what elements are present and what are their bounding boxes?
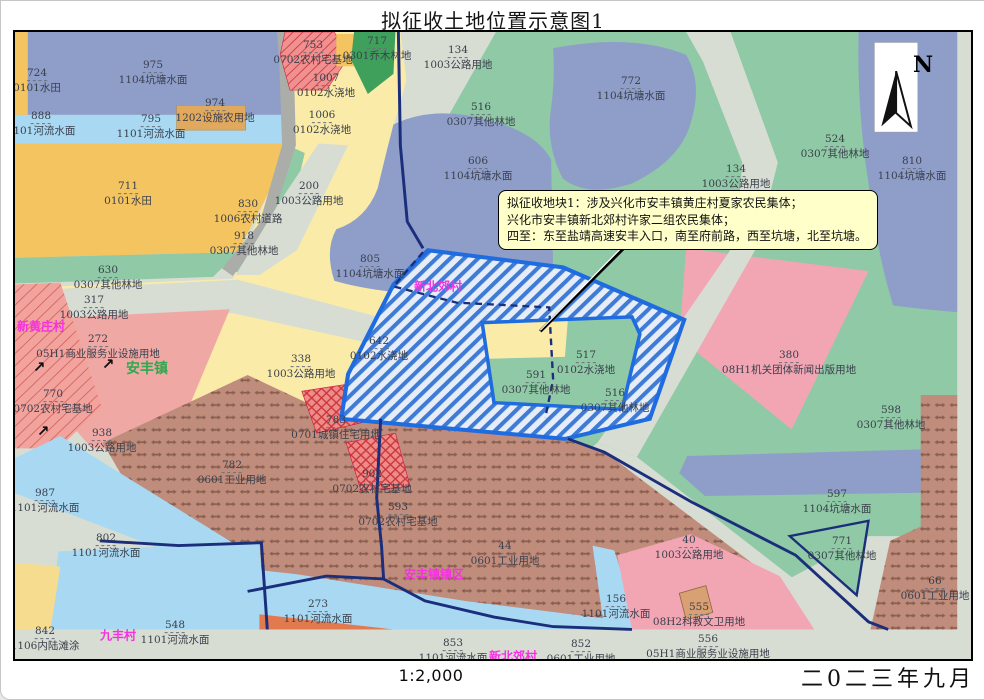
map-canvas[interactable]: 7240101水田9751104坑塘水面9741202设施农用地8881101河… xyxy=(13,30,973,661)
north-label: N xyxy=(909,52,937,78)
facility-agri-974 xyxy=(177,105,246,130)
pond-top-left xyxy=(15,32,284,115)
map-parcels-svg xyxy=(15,32,971,659)
callout-line-3: 四至：东至盐靖高速安丰入口，南至府前路，西至坑塘，北至坑塘。 xyxy=(507,228,869,245)
map-scale: 1:2,000 xyxy=(1,666,861,685)
callout-line-1: 拟征收地块1：涉及兴化市安丰镇黄庄村夏家农民集体； xyxy=(507,195,869,212)
map-date: 二0二三年九月 xyxy=(801,661,975,693)
river-548 xyxy=(49,542,266,630)
pond-597 xyxy=(679,448,957,496)
acquisition-callout[interactable]: 拟征收地块1：涉及兴化市安丰镇黄庄村夏家农民集体； 兴化市安丰镇新北郊村许家二组… xyxy=(498,190,878,250)
land-acquisition-map-page: 拟征收土地位置示意图1 xyxy=(0,0,984,700)
callout-line-2: 兴化市安丰镇新北郊村许家二组农民集体； xyxy=(507,212,869,229)
